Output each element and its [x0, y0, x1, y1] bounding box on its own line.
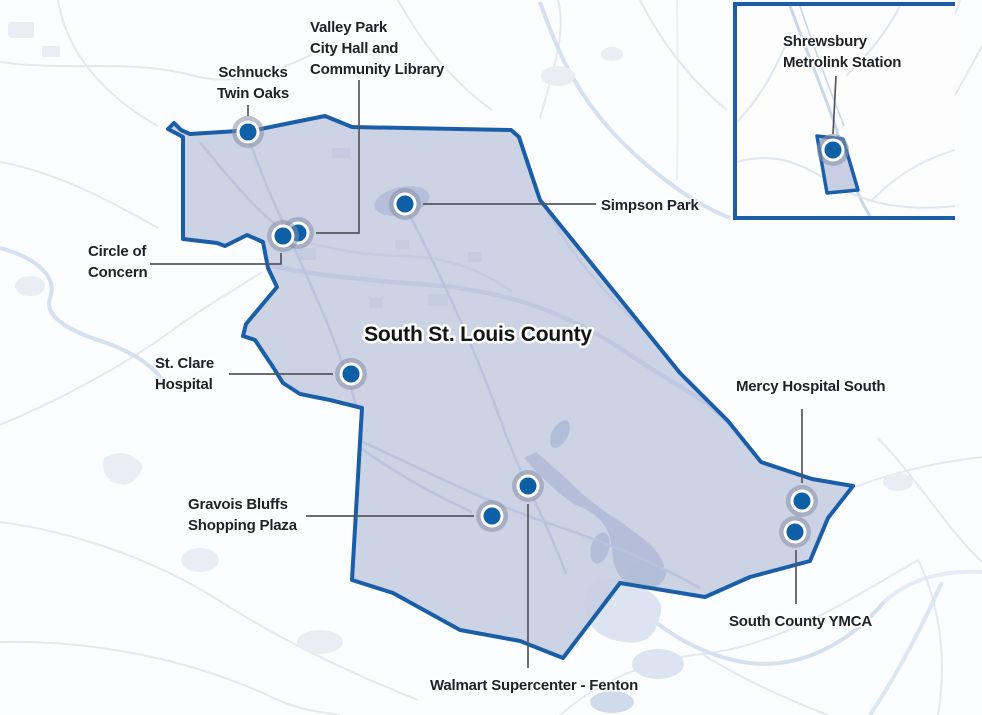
marker-shrewsbury-metrolink-station[interactable]: [817, 134, 849, 166]
marker-dot: [825, 142, 842, 159]
marker-circle-of-concern[interactable]: [267, 220, 299, 252]
marker-st-clare-hospital[interactable]: [335, 358, 367, 390]
marker-mercy-hospital-south[interactable]: [786, 485, 818, 517]
marker-dot: [484, 508, 501, 525]
marker-dot: [520, 478, 537, 495]
label-walmart-supercenter-fenton: Walmart Supercenter - Fenton: [430, 677, 638, 694]
marker-south-county-ymca[interactable]: [779, 516, 811, 548]
marker-dot: [275, 228, 292, 245]
marker-dot: [397, 196, 414, 213]
label-simpson-park: Simpson Park: [601, 197, 699, 214]
marker-dot: [787, 524, 804, 541]
inset-panel: ShrewsburyMetrolink Station: [735, 4, 955, 218]
marker-gravois-bluffs-shopping-plaza[interactable]: [476, 500, 508, 532]
map-canvas: South St. Louis County SchnucksTwin Oaks…: [0, 0, 982, 715]
map-page: South St. Louis County SchnucksTwin Oaks…: [0, 0, 982, 715]
marker-dot: [240, 124, 257, 141]
marker-walmart-supercenter-fenton[interactable]: [512, 470, 544, 502]
marker-dot: [343, 366, 360, 383]
marker-dot: [794, 493, 811, 510]
label-south-county-ymca: South County YMCA: [729, 613, 872, 630]
marker-schnucks-twin-oaks[interactable]: [232, 116, 264, 148]
label-mercy-hospital-south: Mercy Hospital South: [736, 378, 885, 395]
marker-simpson-park[interactable]: [389, 188, 421, 220]
region-title-label: South St. Louis County: [364, 323, 592, 346]
